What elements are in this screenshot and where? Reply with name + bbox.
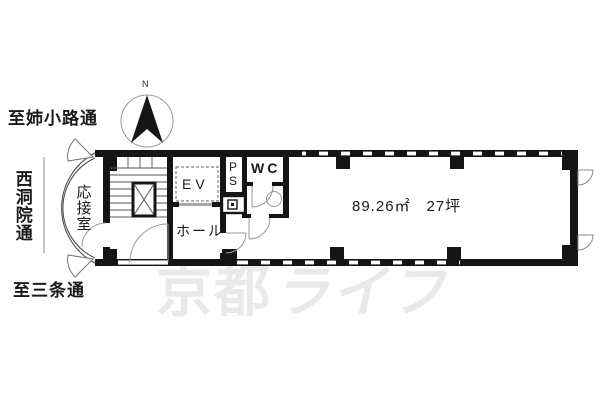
right-side-door-swings xyxy=(578,170,593,250)
floor-area-label: 89.26㎡ 27坪 xyxy=(352,199,461,216)
compass-north-label: N xyxy=(142,80,149,90)
street-label-bottom: 至三条通 xyxy=(13,282,85,301)
room-label-reception: 応接室 xyxy=(74,184,91,232)
meter-box xyxy=(222,196,245,213)
compass xyxy=(121,95,173,147)
street-label-left: 西洞院通 xyxy=(12,170,31,242)
stair-newel-box xyxy=(133,183,155,216)
floor-plan-page: 京都ライフ xyxy=(0,0,600,400)
elevator-door xyxy=(179,203,212,206)
street-label-top: 至姉小路通 xyxy=(8,110,98,129)
walls xyxy=(95,150,578,266)
room-label-wc: WC xyxy=(251,161,280,176)
room-label-hall: ホール xyxy=(176,224,224,239)
door-swing-right-top xyxy=(578,170,593,185)
door-swing-top-left xyxy=(68,139,93,161)
door-swing-bottom-left xyxy=(68,255,93,277)
room-label-pipe-space: PS xyxy=(227,160,239,188)
room-label-elevator: EV xyxy=(182,177,209,192)
north-arrow-icon xyxy=(131,95,163,143)
door-swing-right-bottom xyxy=(578,235,593,250)
